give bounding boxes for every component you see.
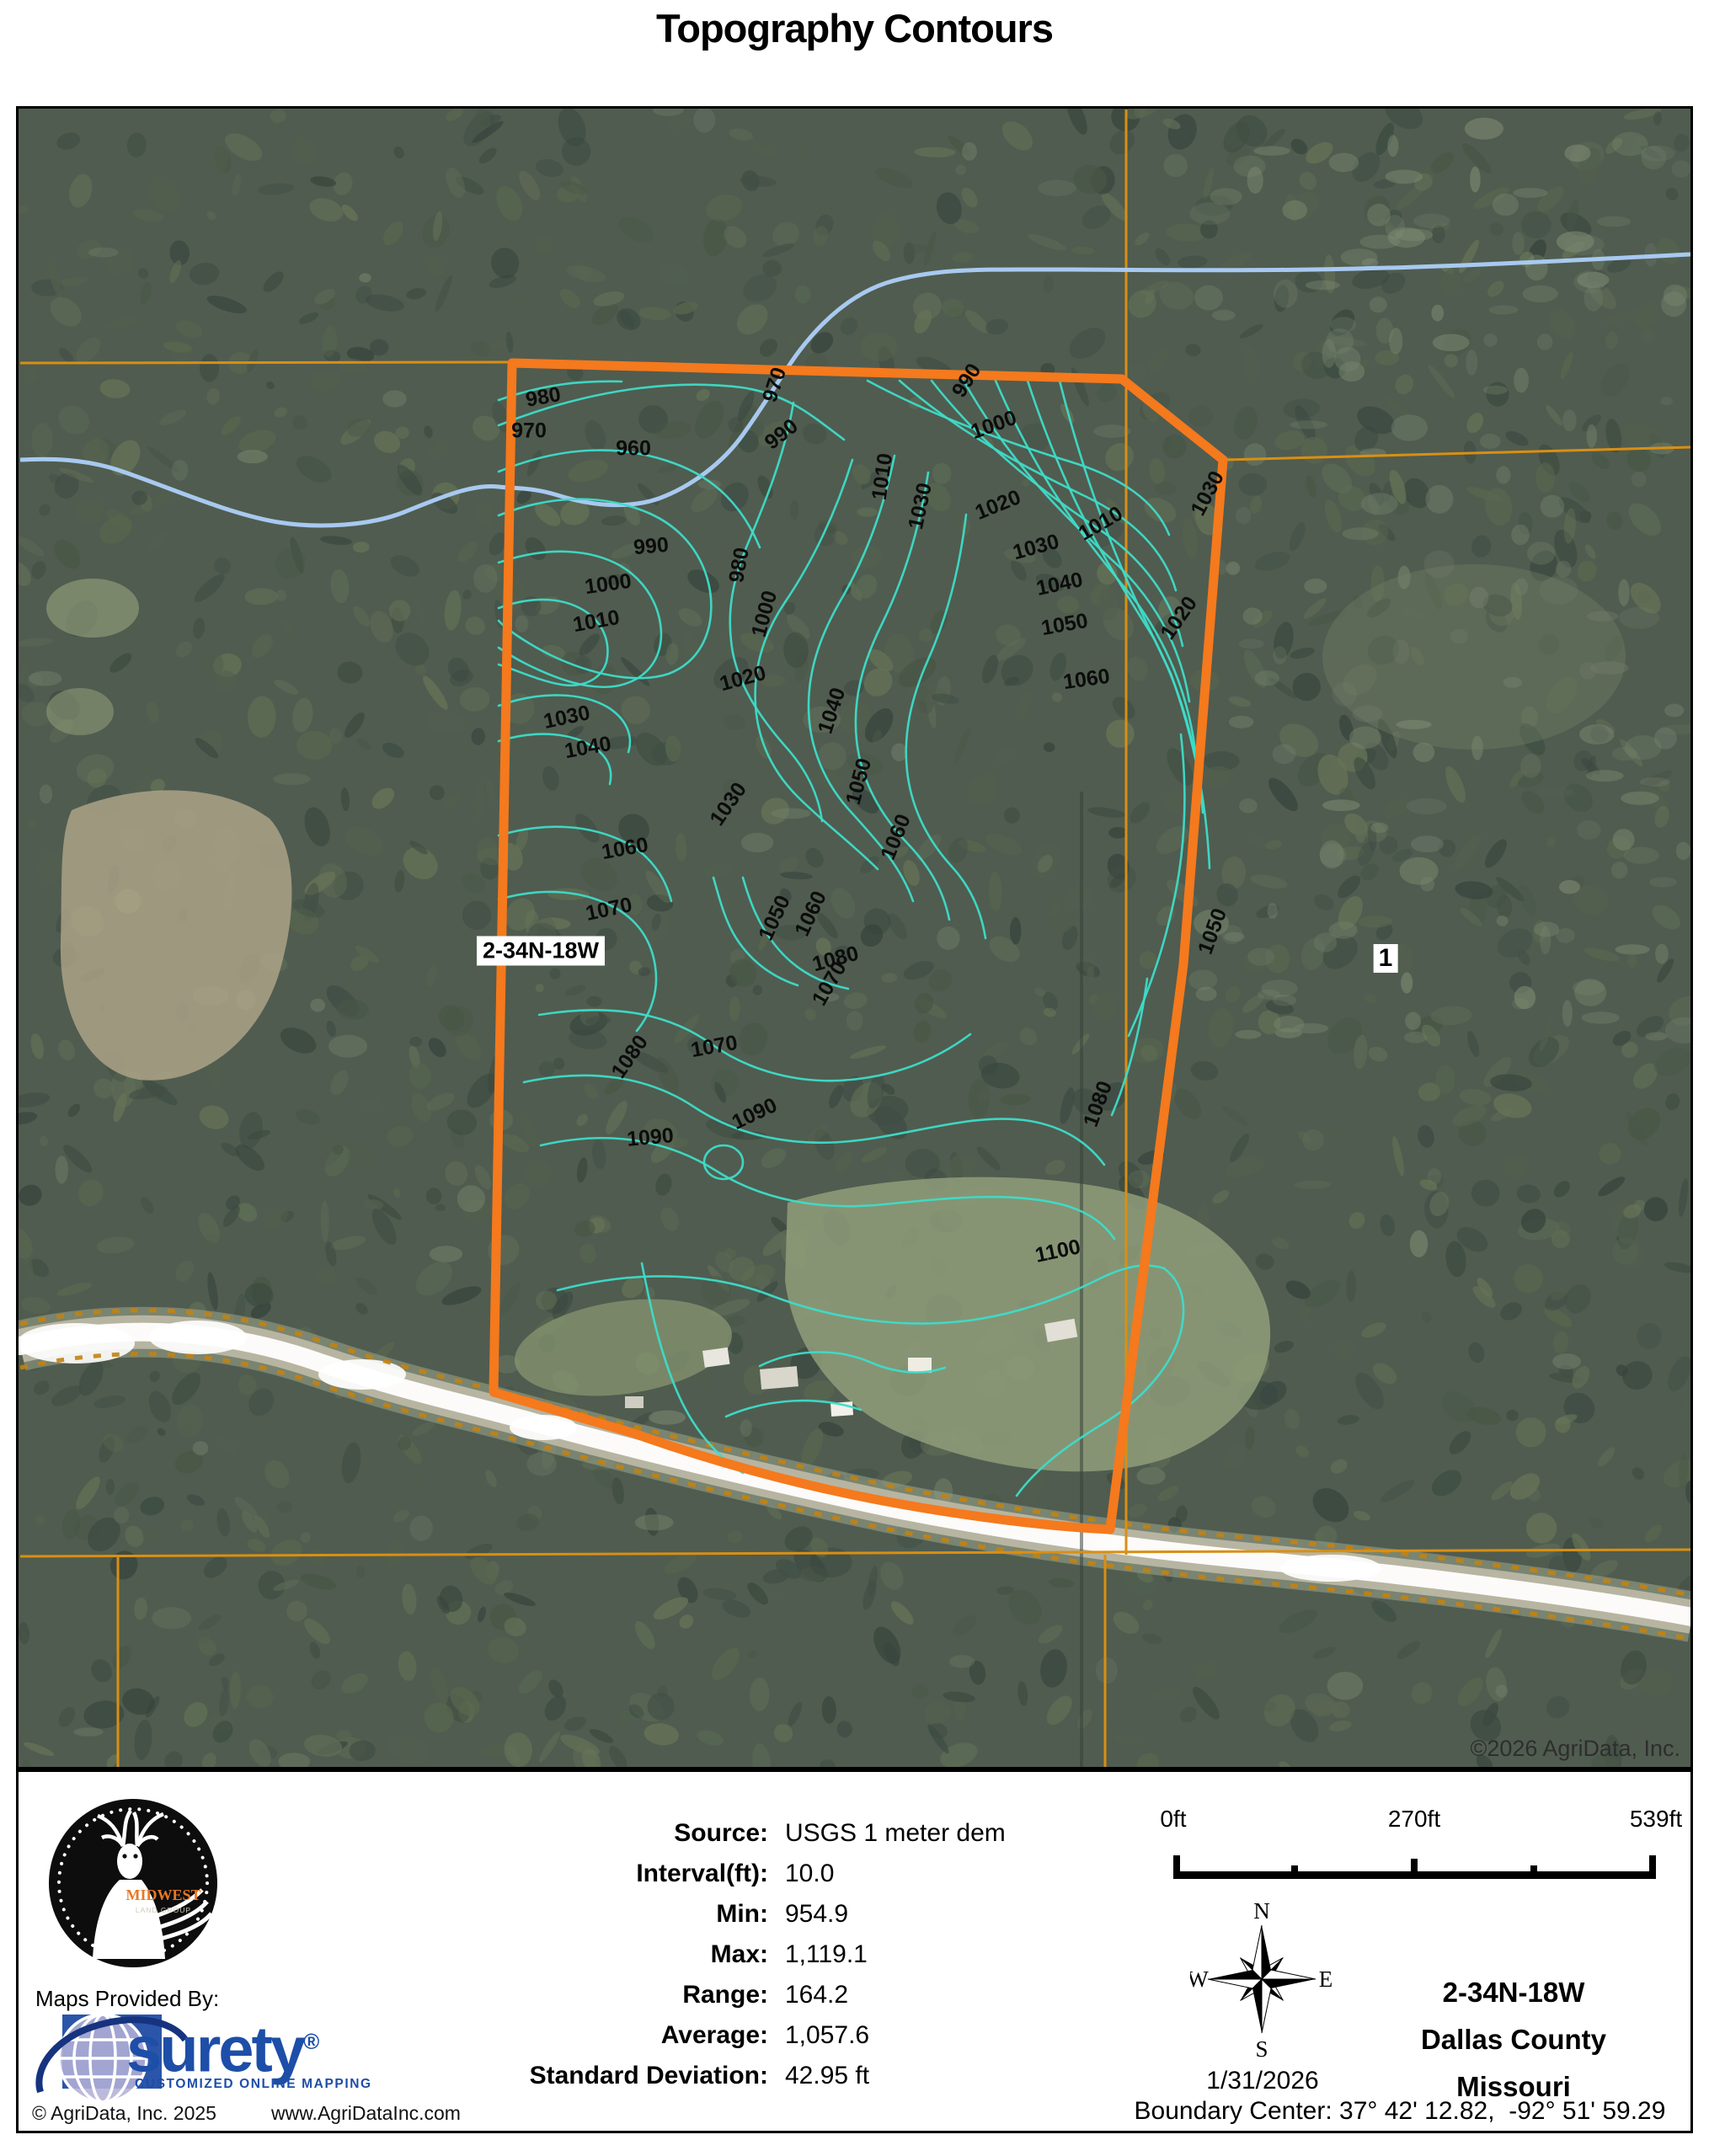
scale-tick xyxy=(1530,1865,1537,1879)
scale-tick xyxy=(1291,1865,1298,1879)
map-canvas: 9809709609709909901000101010101020103010… xyxy=(16,106,1693,1769)
compass-north-label: N xyxy=(1253,1898,1270,1924)
location-county: Dallas County xyxy=(1375,2021,1653,2058)
page-title: Topography Contours xyxy=(0,5,1709,51)
stat-label: Range: xyxy=(322,1977,768,2013)
midwest-logo-text: MIDWEST xyxy=(126,1886,200,1903)
stat-row: Source:USGS 1 meter dem xyxy=(322,1816,1164,1851)
midwest-logo-subtext: LAND GROUP xyxy=(136,1906,191,1914)
parcel-township-label: 2-34N-18W xyxy=(477,937,605,966)
map-date: 1/31/2026 xyxy=(1160,2067,1365,2095)
stat-value: 164.2 xyxy=(785,1977,848,2013)
compass-star xyxy=(1208,1925,1316,2033)
map-scale-bar: 0ft 270ft 539ft xyxy=(1173,1806,1656,1883)
aerial-map-image xyxy=(19,109,1690,1767)
surety-name: surety xyxy=(126,2014,303,2085)
compass-south-label: S xyxy=(1255,2036,1268,2062)
scale-tick xyxy=(1649,1855,1656,1879)
maps-provided-by-label: Maps Provided By: xyxy=(35,1986,219,2012)
boundary-center-coordinates: Boundary Center: 37° 42' 12.82, -92° 51'… xyxy=(1114,2097,1686,2126)
scale-label-0: 0ft xyxy=(1160,1806,1186,1833)
map-watermark: ©2026 AgriData, Inc. xyxy=(1470,1736,1680,1762)
surety-logo-wordmark: surety® xyxy=(126,2009,319,2082)
scale-label-mid: 270ft xyxy=(1388,1806,1440,1833)
scale-tick xyxy=(1411,1859,1418,1879)
contour-elevation-label: 1090 xyxy=(626,1123,675,1152)
stat-value: 1,057.6 xyxy=(785,2018,869,2053)
scale-label-max: 539ft xyxy=(1630,1806,1682,1833)
stat-label: Interval(ft): xyxy=(322,1856,768,1892)
midwest-land-group-logo: MIDWEST LAND GROUP xyxy=(44,1794,222,1972)
stat-row: Min:954.9 xyxy=(322,1897,1164,1932)
stat-row: Standard Deviation:42.95 ft xyxy=(322,2058,1164,2094)
stat-label: Max: xyxy=(322,1937,768,1972)
compass-west-label: W xyxy=(1190,1967,1209,1992)
contour-elevation-label: 970 xyxy=(511,419,547,444)
contour-elevation-label: 960 xyxy=(616,437,651,462)
compass-east-label: E xyxy=(1319,1967,1333,1992)
stat-label: Average: xyxy=(322,2018,768,2053)
agridata-website: www.AgriDataInc.com xyxy=(271,2102,461,2125)
stat-value: USGS 1 meter dem xyxy=(785,1816,1006,1851)
stat-label: Standard Deviation: xyxy=(322,2058,768,2094)
stat-value: 42.95 ft xyxy=(785,2058,869,2094)
stat-row: Range:164.2 xyxy=(322,1977,1164,2013)
page: { "title": "Topography Contours", "map":… xyxy=(0,0,1709,2156)
section-number-label: 1 xyxy=(1374,944,1398,973)
stat-label: Min: xyxy=(322,1897,768,1932)
stat-value: 10.0 xyxy=(785,1856,834,1892)
contour-elevation-label: 990 xyxy=(633,533,670,561)
stat-value: 1,119.1 xyxy=(785,1937,868,1972)
surety-registered-mark: ® xyxy=(303,2029,319,2054)
stat-row: Max:1,119.1 xyxy=(322,1937,1164,1972)
scale-tick xyxy=(1173,1855,1180,1879)
compass-rose-icon: N S W E xyxy=(1190,1897,1333,2062)
stat-row: Average:1,057.6 xyxy=(322,2018,1164,2053)
stat-value: 954.9 xyxy=(785,1897,848,1932)
location-township: 2-34N-18W xyxy=(1375,1974,1653,2011)
stat-label: Source: xyxy=(322,1816,768,1851)
footer-panel: MIDWEST LAND GROUP Maps Provided By: sur… xyxy=(16,1769,1693,2133)
agridata-copyright: © AgriData, Inc. 2025 xyxy=(32,2102,216,2125)
stat-row: Interval(ft):10.0 xyxy=(322,1856,1164,1892)
